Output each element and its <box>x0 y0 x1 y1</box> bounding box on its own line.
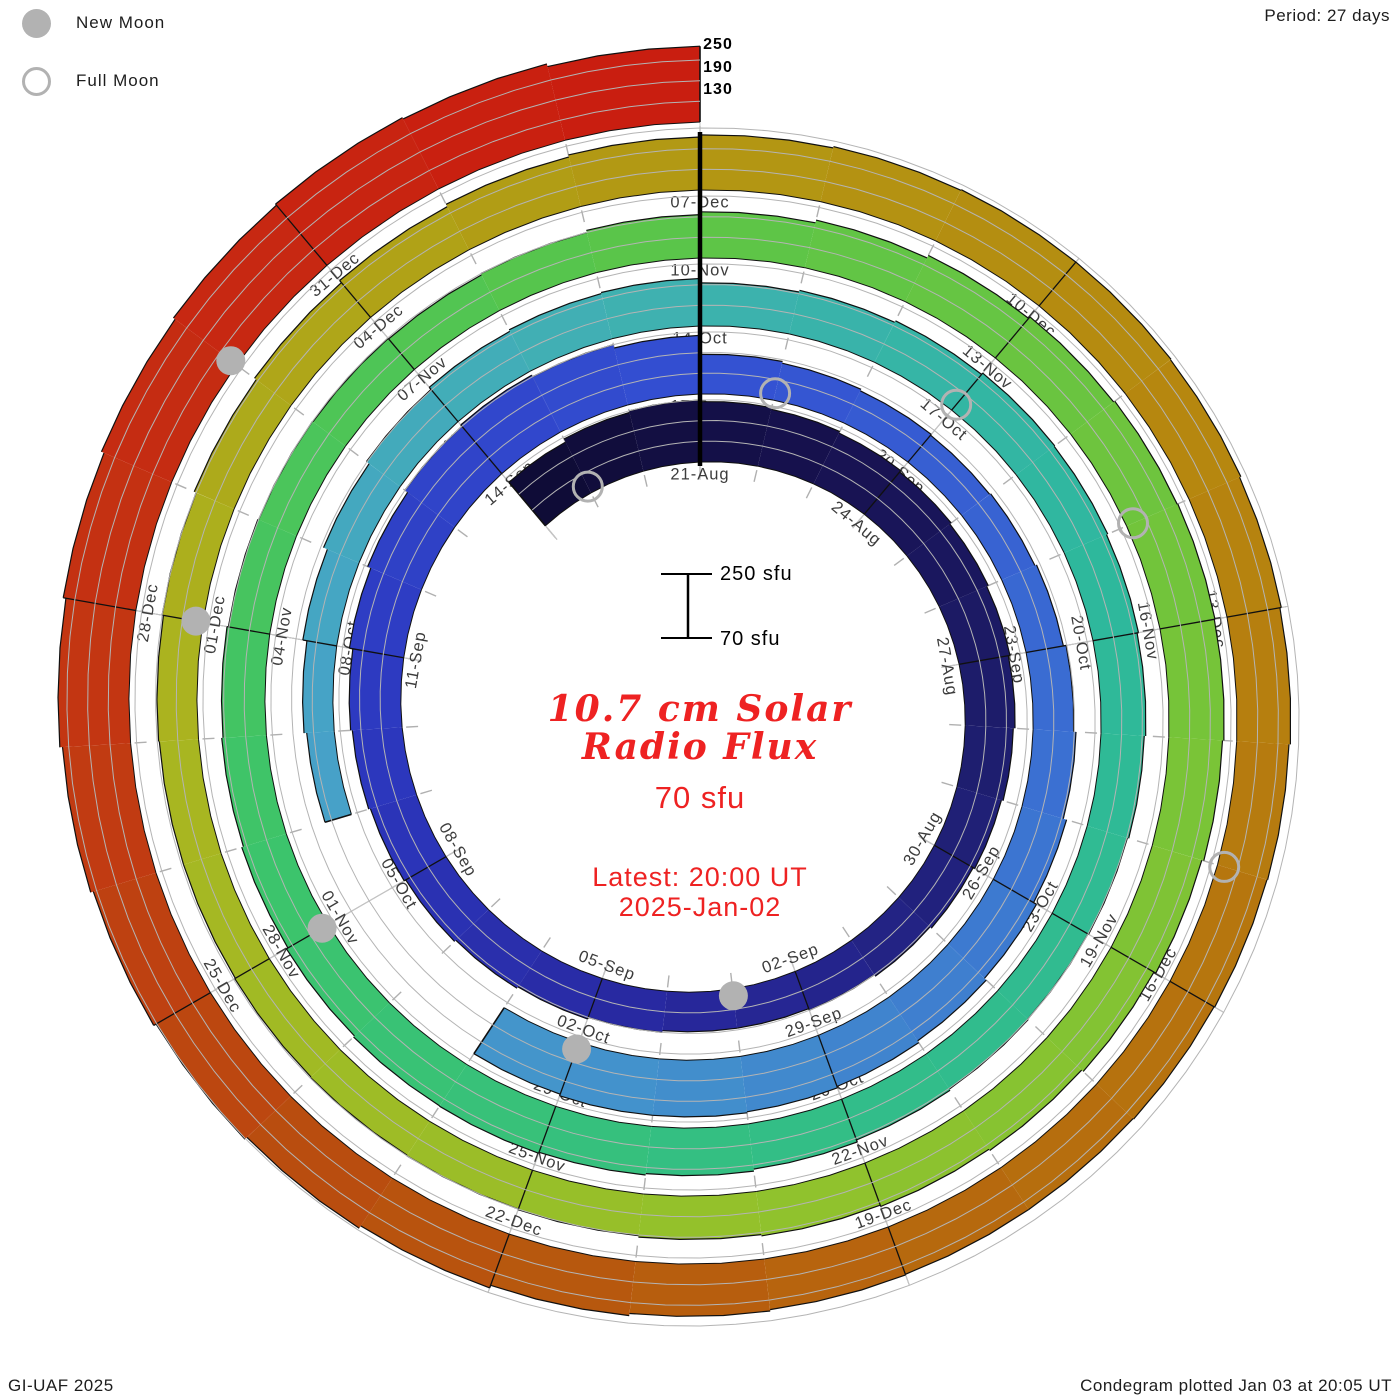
credit-label: GI-UAF 2025 <box>8 1376 114 1396</box>
radial-axis-labels: 250 190 130 <box>698 34 738 102</box>
new-moon-marker <box>216 346 245 375</box>
full-moon-label: Full Moon <box>76 71 160 91</box>
new-moon-marker <box>562 1035 591 1064</box>
new-moon-marker <box>181 607 210 636</box>
legend-row-new-moon: New Moon <box>22 0 165 46</box>
date-label: 21-Aug <box>670 465 729 483</box>
radial-axis-130: 130 <box>698 79 738 102</box>
new-moon-marker <box>308 914 337 943</box>
plotted-timestamp: Condegram plotted Jan 03 at 20:05 UT <box>1080 1376 1392 1396</box>
flux-scale-bar <box>661 574 712 638</box>
condegram-spiral-plot: 21-Aug24-Aug27-Aug30-Aug02-Sep05-Sep08-S… <box>0 0 1400 1400</box>
moon-legend: New Moon Full Moon <box>22 0 165 116</box>
scalebar-min-label: 70 sfu <box>720 628 780 651</box>
legend-row-full-moon: Full Moon <box>22 58 165 104</box>
period-label: Period: 27 days <box>1264 6 1390 26</box>
new-moon-label: New Moon <box>76 13 165 33</box>
condegram-page: 21-Aug24-Aug27-Aug30-Aug02-Sep05-Sep08-S… <box>0 0 1400 1400</box>
radial-axis-190: 190 <box>698 57 738 80</box>
scalebar-max-label: 250 sfu <box>720 563 793 586</box>
radial-axis-250: 250 <box>698 34 738 57</box>
full-moon-icon <box>22 67 51 96</box>
new-moon-icon <box>22 9 51 38</box>
new-moon-marker <box>719 981 748 1010</box>
